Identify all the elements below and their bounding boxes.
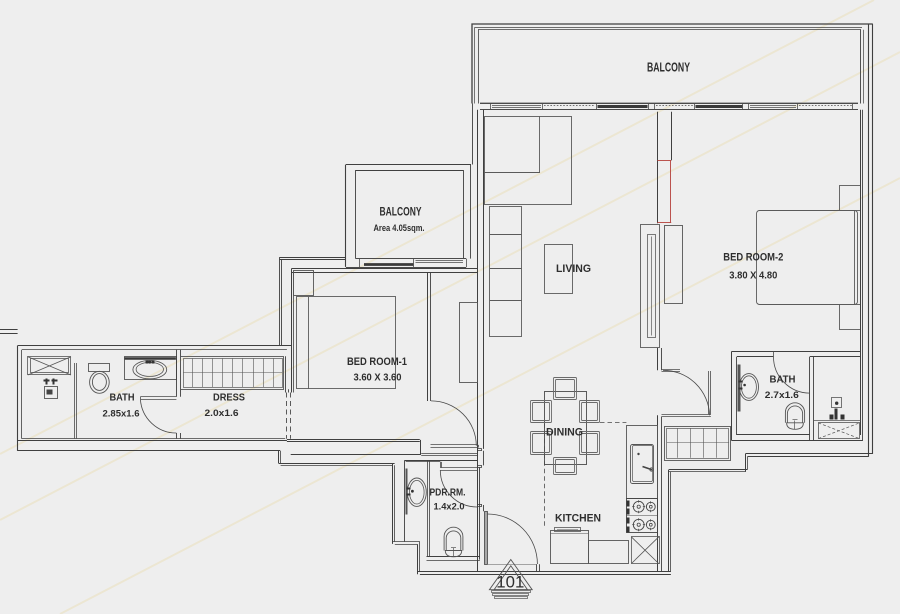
svg-text:BED ROOM-2: BED ROOM-2 [723,252,783,264]
svg-text:KITCHEN: KITCHEN [555,513,601,525]
svg-text:2.7x1.6: 2.7x1.6 [765,390,799,401]
svg-text:3.60 X 3.60: 3.60 X 3.60 [354,373,402,384]
svg-text:2.0x1.6: 2.0x1.6 [205,408,239,419]
svg-text:BALCONY: BALCONY [380,205,422,219]
svg-text:2.85x1.6: 2.85x1.6 [103,409,140,420]
svg-text:101: 101 [496,574,524,592]
svg-text:Area 4.05sqm.: Area 4.05sqm. [374,223,425,234]
svg-text:PDR.RM.: PDR.RM. [430,488,466,499]
svg-text:DINING: DINING [546,427,583,439]
svg-text:BATH: BATH [110,392,135,404]
svg-text:DRESS: DRESS [213,392,245,404]
svg-text:3.80 X 4.80: 3.80 X 4.80 [729,271,777,282]
svg-text:LIVING: LIVING [556,263,591,275]
svg-text:BATH: BATH [770,374,796,386]
svg-text:BED ROOM-1: BED ROOM-1 [347,356,407,368]
svg-text:BALCONY: BALCONY [647,60,690,75]
svg-text:1.4x2.0: 1.4x2.0 [434,502,465,512]
